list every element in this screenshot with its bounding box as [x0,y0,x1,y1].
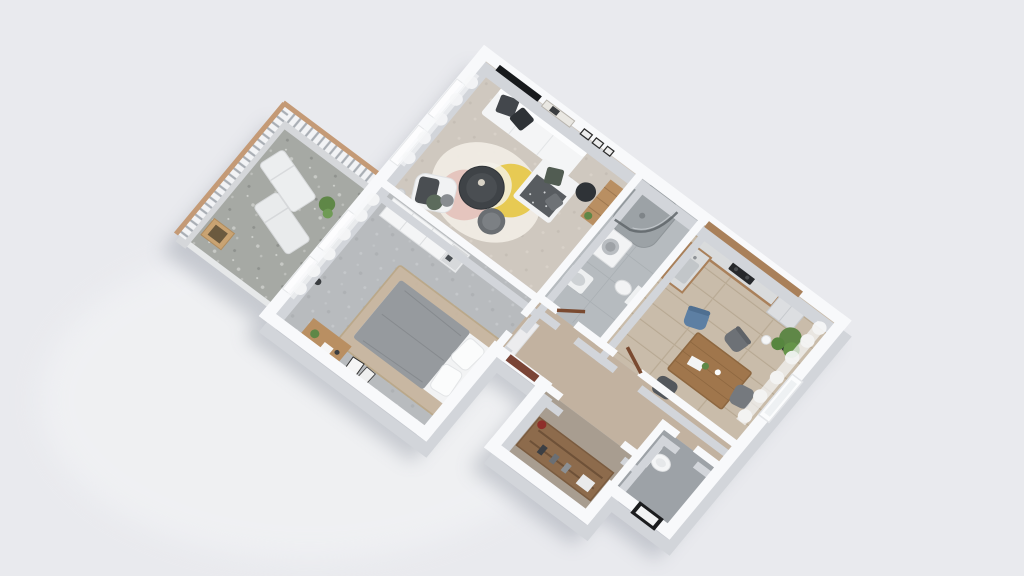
floorplan-stage [0,0,1024,576]
floorplan-render [0,0,1024,576]
